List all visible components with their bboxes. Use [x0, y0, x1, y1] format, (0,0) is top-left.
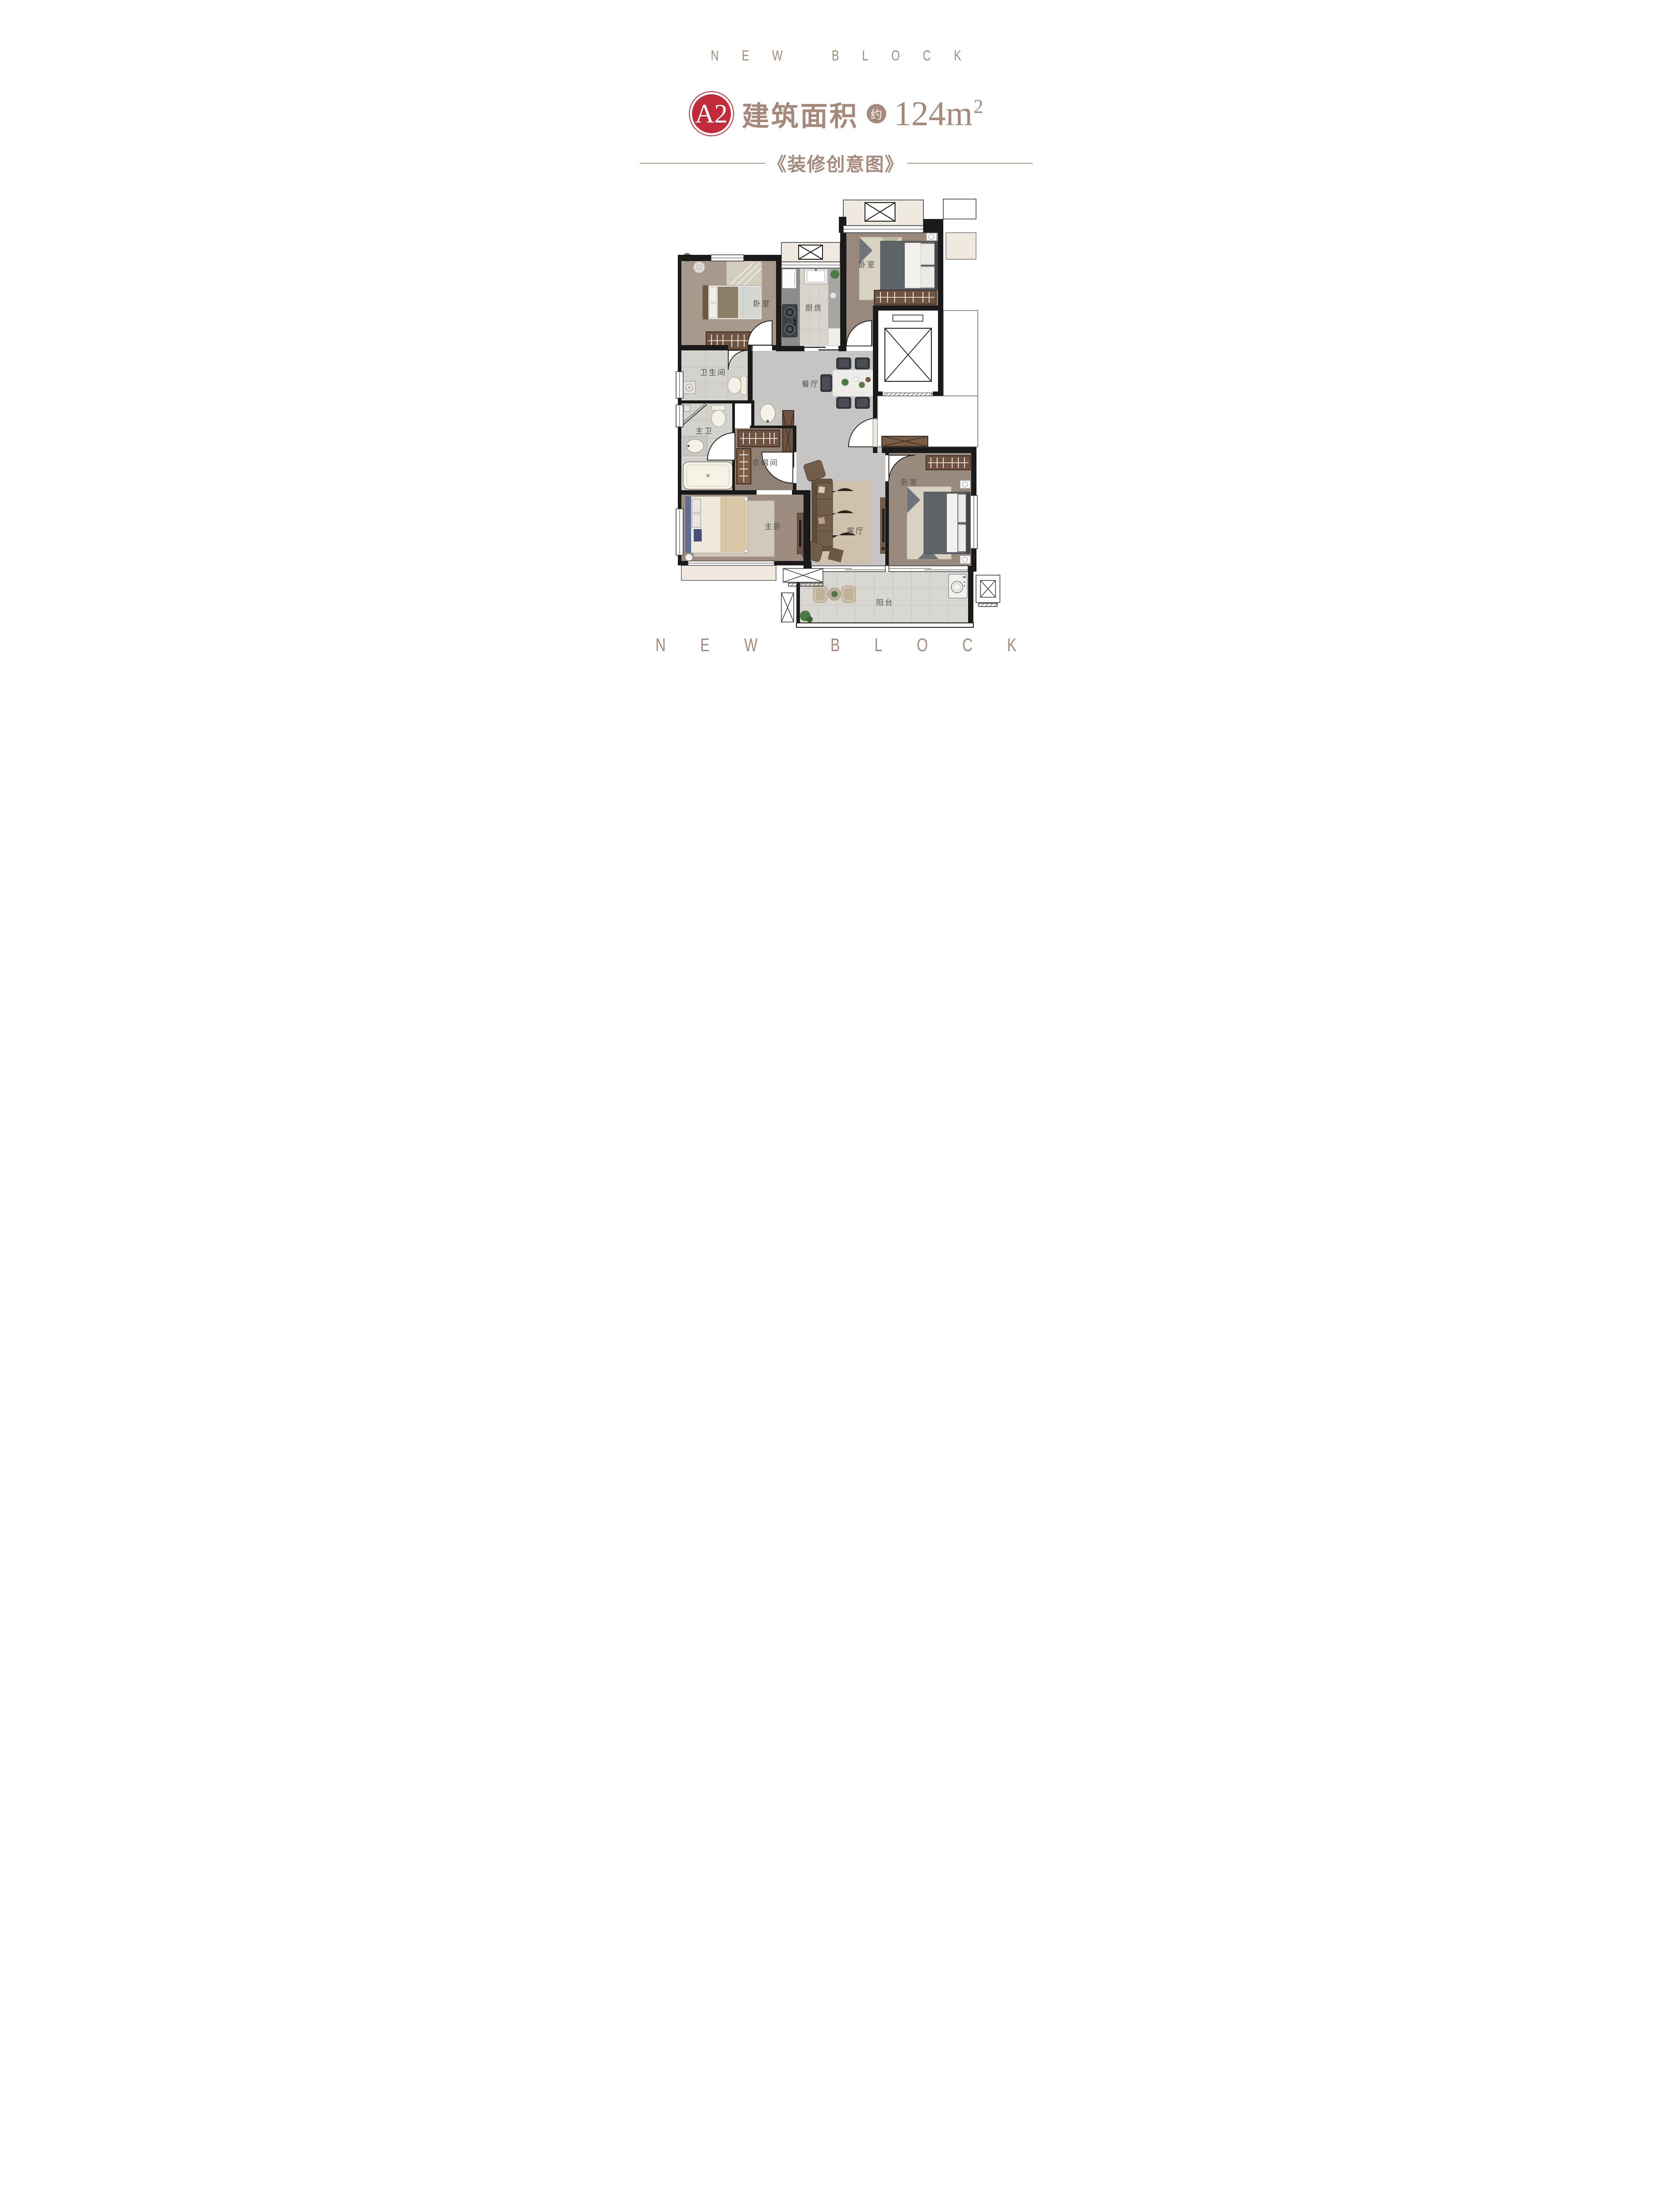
- shower-bathroom: [683, 381, 696, 394]
- entry-threshold: [873, 419, 877, 447]
- bed-top-right: [880, 241, 938, 290]
- sofa: [811, 479, 833, 551]
- page: NEW BLOCK A2 建筑面积 约 124m2 《装修创意图》: [597, 0, 1075, 687]
- bed-right: [924, 492, 970, 554]
- room-label-cloakroom: 衣帽间: [752, 459, 779, 467]
- toilet-bathroom: [728, 376, 747, 395]
- room-label-kitchen: 厨房: [805, 304, 823, 312]
- room-label-bathroom: 卫生间: [700, 369, 726, 377]
- bed-master: [685, 496, 748, 553]
- room-label-bedroom-right: 卧室: [901, 478, 919, 487]
- room-label-dining: 餐厅: [802, 380, 819, 388]
- ac-box-southwest: [783, 568, 823, 586]
- room-label-bedroom-top-left: 卧室: [753, 300, 771, 308]
- flue-balcony-right: [976, 575, 1000, 607]
- nightstand-master: [685, 554, 692, 561]
- flue-box: [943, 199, 976, 219]
- brand-bottom: NEW BLOCK: [597, 634, 1075, 656]
- stove: [782, 304, 797, 337]
- room-label-bedroom-top-right: 卧室: [858, 261, 876, 269]
- plant: [830, 270, 839, 279]
- elevator: [878, 311, 938, 396]
- ac-platform: [882, 436, 928, 446]
- room-label-living: 客厅: [847, 527, 865, 535]
- room-label-master-bedroom: 主卧: [765, 522, 782, 531]
- pouf: [693, 261, 705, 273]
- room-label-master-bathroom: 主卫: [696, 427, 713, 435]
- toilet-master: [711, 405, 726, 427]
- basin-nook: [760, 404, 775, 422]
- elevator-door: [893, 315, 923, 321]
- floor-plan: 卧室 厨房 卧室 卫生间 餐厅 主卫 衣帽间 主卧 客厅 卧室 阳台: [597, 0, 1075, 687]
- wardrobe-right: [926, 456, 970, 470]
- dish: [830, 292, 836, 299]
- basin-master: [683, 436, 707, 456]
- balcony-chairs: [813, 586, 856, 603]
- master-window-sill: [681, 565, 776, 580]
- bathtub: [683, 462, 733, 489]
- kitchen-sink: [804, 269, 827, 284]
- washing-machine: [949, 574, 967, 598]
- wardrobe-top-right: [874, 290, 936, 304]
- lobby: [943, 311, 978, 396]
- room-label-balcony: 阳台: [876, 599, 894, 607]
- fridge: [782, 269, 796, 288]
- flue-balcony-left: [781, 593, 794, 622]
- tv-console-master: [797, 513, 803, 554]
